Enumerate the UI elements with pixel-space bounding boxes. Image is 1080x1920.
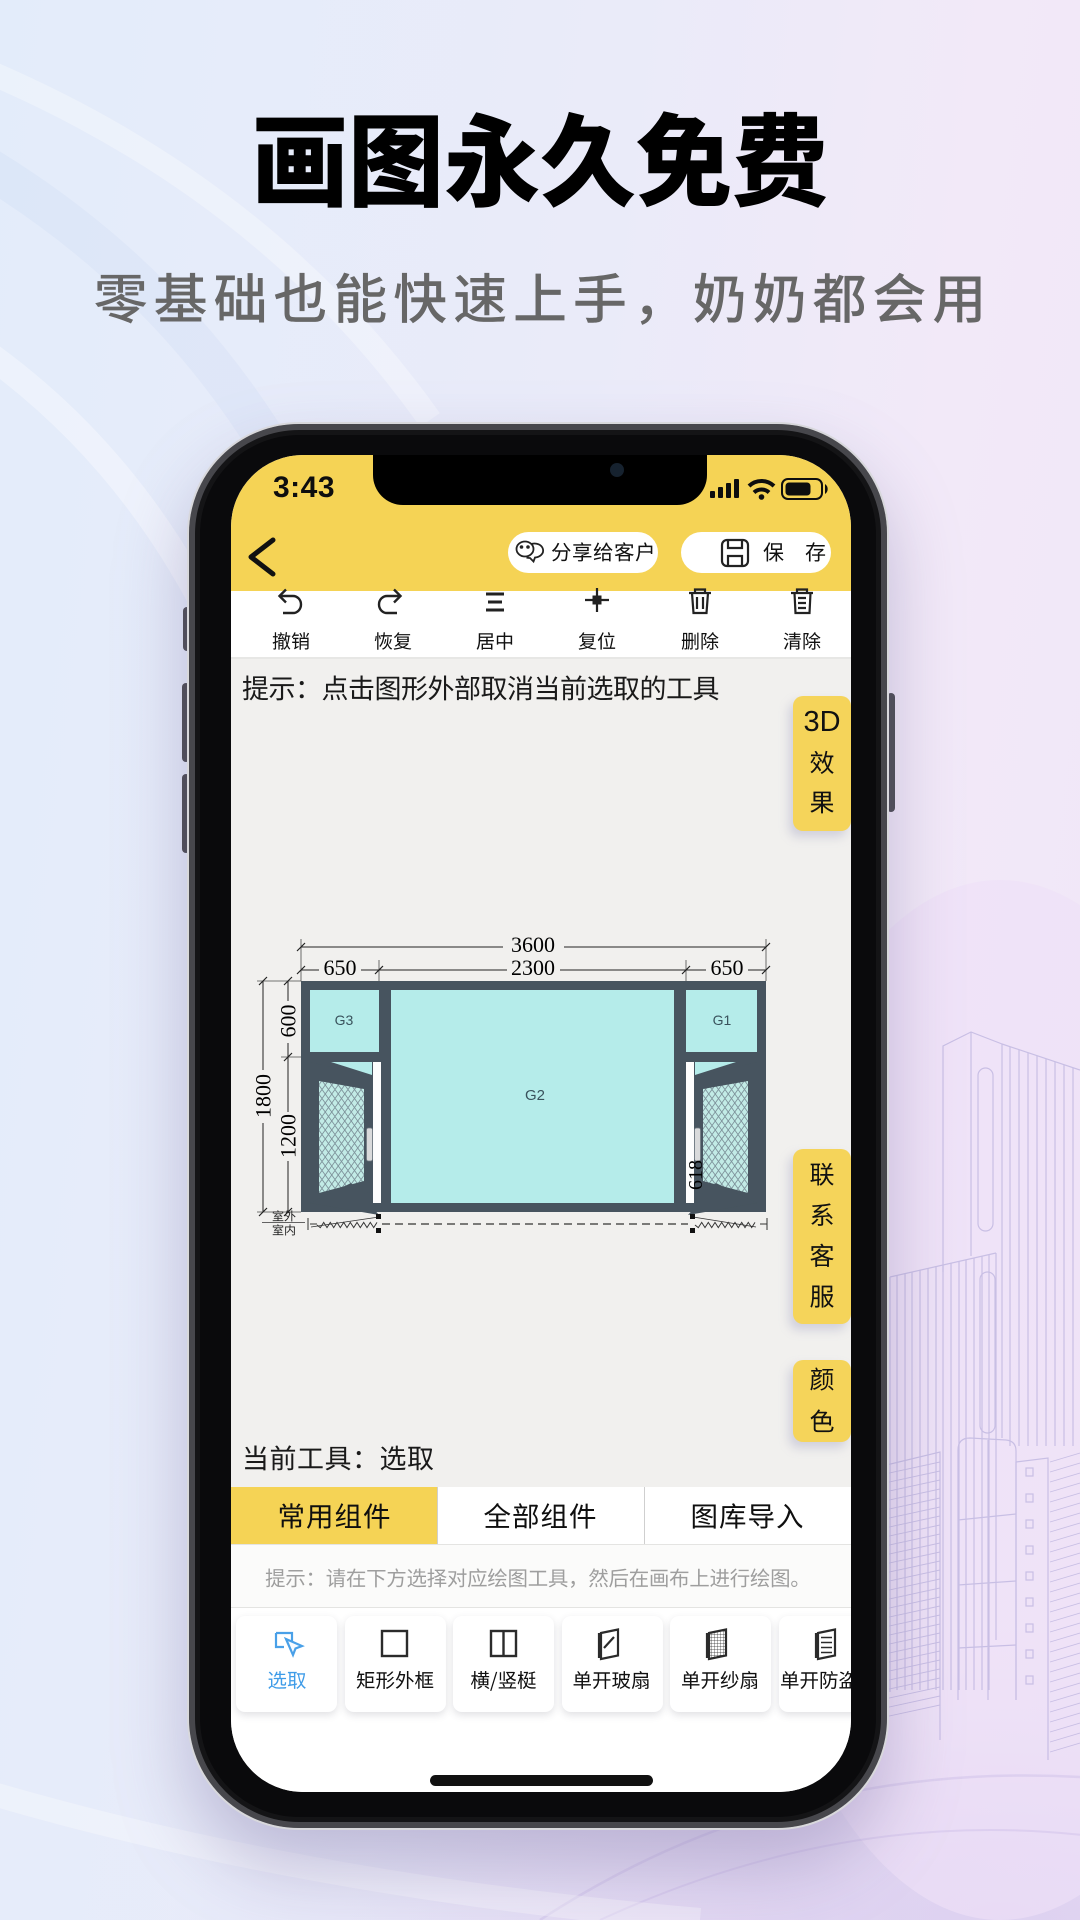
svg-text:G1: G1 [713, 1012, 732, 1028]
svg-text:650: 650 [711, 955, 744, 980]
svg-text:1200: 1200 [276, 1114, 301, 1158]
svg-text:1800: 1800 [251, 1074, 276, 1118]
svg-text:650: 650 [324, 955, 357, 980]
svg-text:3D: 3D [803, 706, 840, 738]
svg-text:G2: G2 [525, 1087, 545, 1104]
svg-text:3600: 3600 [511, 932, 555, 957]
svg-text:600: 600 [276, 1005, 301, 1038]
svg-text:G3: G3 [335, 1012, 354, 1028]
svg-text:618: 618 [685, 1160, 707, 1190]
svg-text:2300: 2300 [511, 955, 555, 980]
